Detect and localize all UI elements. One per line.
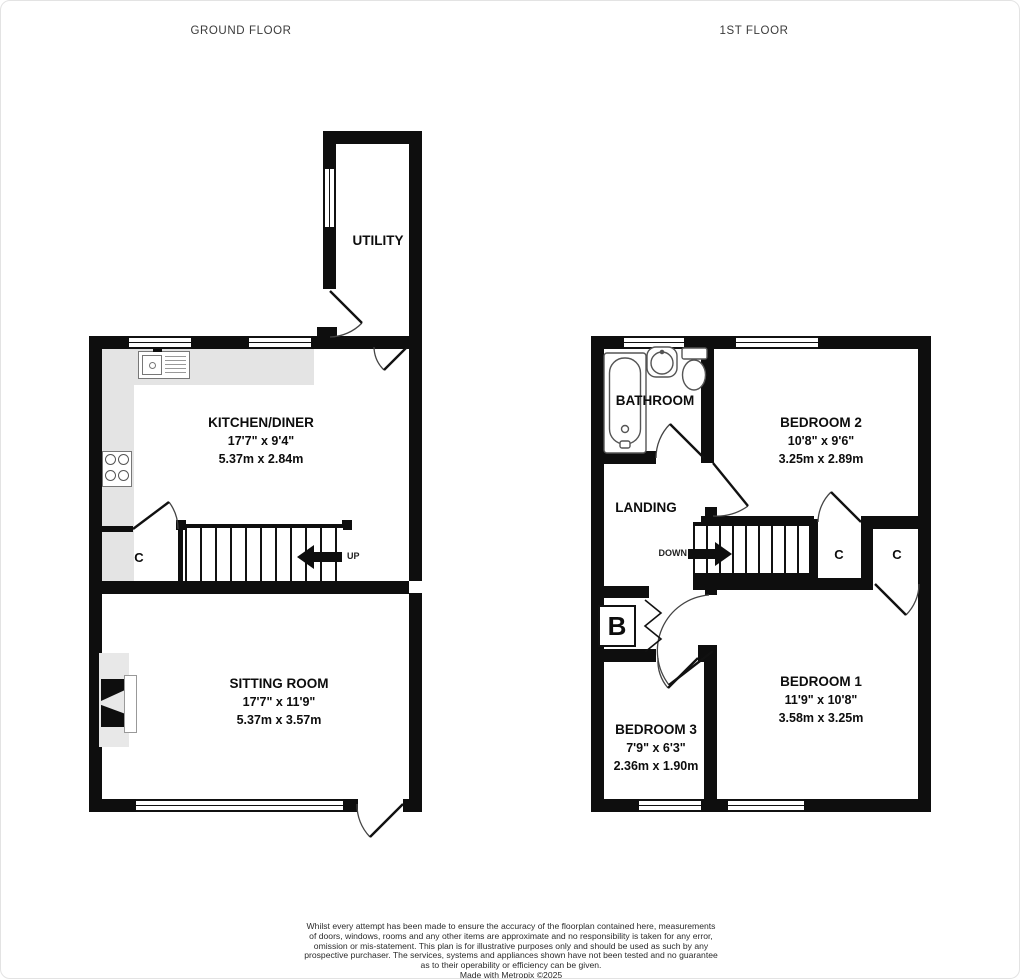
metropix-credit: Made with Metropix ©2025: [261, 971, 761, 979]
tap-icon: [153, 349, 162, 352]
floorplan-canvas: GROUND FLOOR 1ST FLOOR: [0, 0, 1020, 979]
stair-rail: [178, 524, 183, 581]
wall: [89, 799, 136, 812]
wall: [693, 578, 873, 590]
wall: [311, 336, 409, 349]
sink-drain-icon: [149, 362, 156, 369]
wall: [343, 799, 358, 812]
bath-drain-icon: [622, 426, 629, 433]
stairs-up-label: UP: [347, 551, 360, 561]
wall: [591, 799, 639, 812]
wall: [409, 131, 422, 581]
wall: [818, 336, 931, 349]
window: [129, 336, 191, 349]
stair-rail: [693, 573, 811, 578]
bath-tap-icon: [620, 441, 630, 448]
room-label-bedroom-3: BEDROOM 3 7'9" x 6'3" 2.36m x 1.90m: [571, 721, 741, 775]
window: [136, 799, 343, 812]
burner-icon: [118, 454, 129, 465]
room-label-utility: UTILITY: [318, 232, 438, 250]
staircase-up: [185, 528, 343, 581]
room-label-sitting-room: SITTING ROOM 17'7" x 11'9" 5.37m x 3.57m: [194, 675, 364, 729]
wall: [591, 586, 649, 598]
window: [323, 169, 336, 227]
wall: [403, 799, 422, 812]
wall: [191, 336, 249, 349]
wall: [684, 336, 736, 349]
kitchen-counter-top: [101, 349, 314, 385]
burner-icon: [105, 454, 116, 465]
window: [736, 336, 818, 349]
bifold-door: [645, 600, 661, 652]
wall: [323, 131, 421, 144]
boiler-cupboard: B: [598, 605, 636, 647]
door-and-fixture-overlay: [1, 1, 1020, 979]
basin-icon: [647, 347, 677, 377]
wall: [591, 649, 656, 662]
wall: [804, 799, 931, 812]
stairs-down-label: DOWN: [651, 548, 687, 558]
first-floor-heading: 1ST FLOOR: [654, 25, 854, 37]
boiler-label: B: [608, 611, 627, 642]
wall: [89, 581, 409, 594]
window: [728, 799, 804, 812]
wall: [705, 579, 717, 595]
cupboard-label: C: [829, 547, 849, 562]
cupboard-label: C: [887, 547, 907, 562]
wall: [89, 526, 133, 532]
burner-icon: [118, 470, 129, 481]
wall: [918, 336, 931, 811]
wall: [705, 507, 717, 521]
wall: [323, 131, 336, 169]
sink-drainer-icon: [165, 356, 186, 374]
room-label-bathroom: BATHROOM: [595, 392, 715, 410]
room-label-landing: LANDING: [586, 499, 706, 517]
wall: [809, 519, 818, 581]
basin-tap-icon: [660, 350, 663, 353]
wall: [591, 451, 656, 464]
cupboard-label: C: [129, 550, 149, 565]
wall: [701, 799, 728, 812]
staircase-down: [693, 526, 809, 573]
disclaimer: Whilst every attempt has been made to en…: [261, 922, 761, 979]
window: [249, 336, 311, 349]
burner-icon: [105, 470, 116, 481]
basin-bowl-icon: [651, 352, 673, 374]
room-label-bedroom-1: BEDROOM 1 11'9" x 10'8" 3.58m x 3.25m: [736, 673, 906, 727]
ground-floor-heading: GROUND FLOOR: [141, 25, 341, 37]
room-label-bedroom-2: BEDROOM 2 10'8" x 9'6" 3.25m x 2.89m: [736, 414, 906, 468]
fireplace-recess: [124, 675, 137, 733]
room-label-kitchen-diner: KITCHEN/DINER 17'7" x 9'4" 5.37m x 2.84m: [176, 414, 346, 468]
window: [639, 799, 701, 812]
wall: [409, 593, 422, 811]
window: [624, 336, 684, 349]
